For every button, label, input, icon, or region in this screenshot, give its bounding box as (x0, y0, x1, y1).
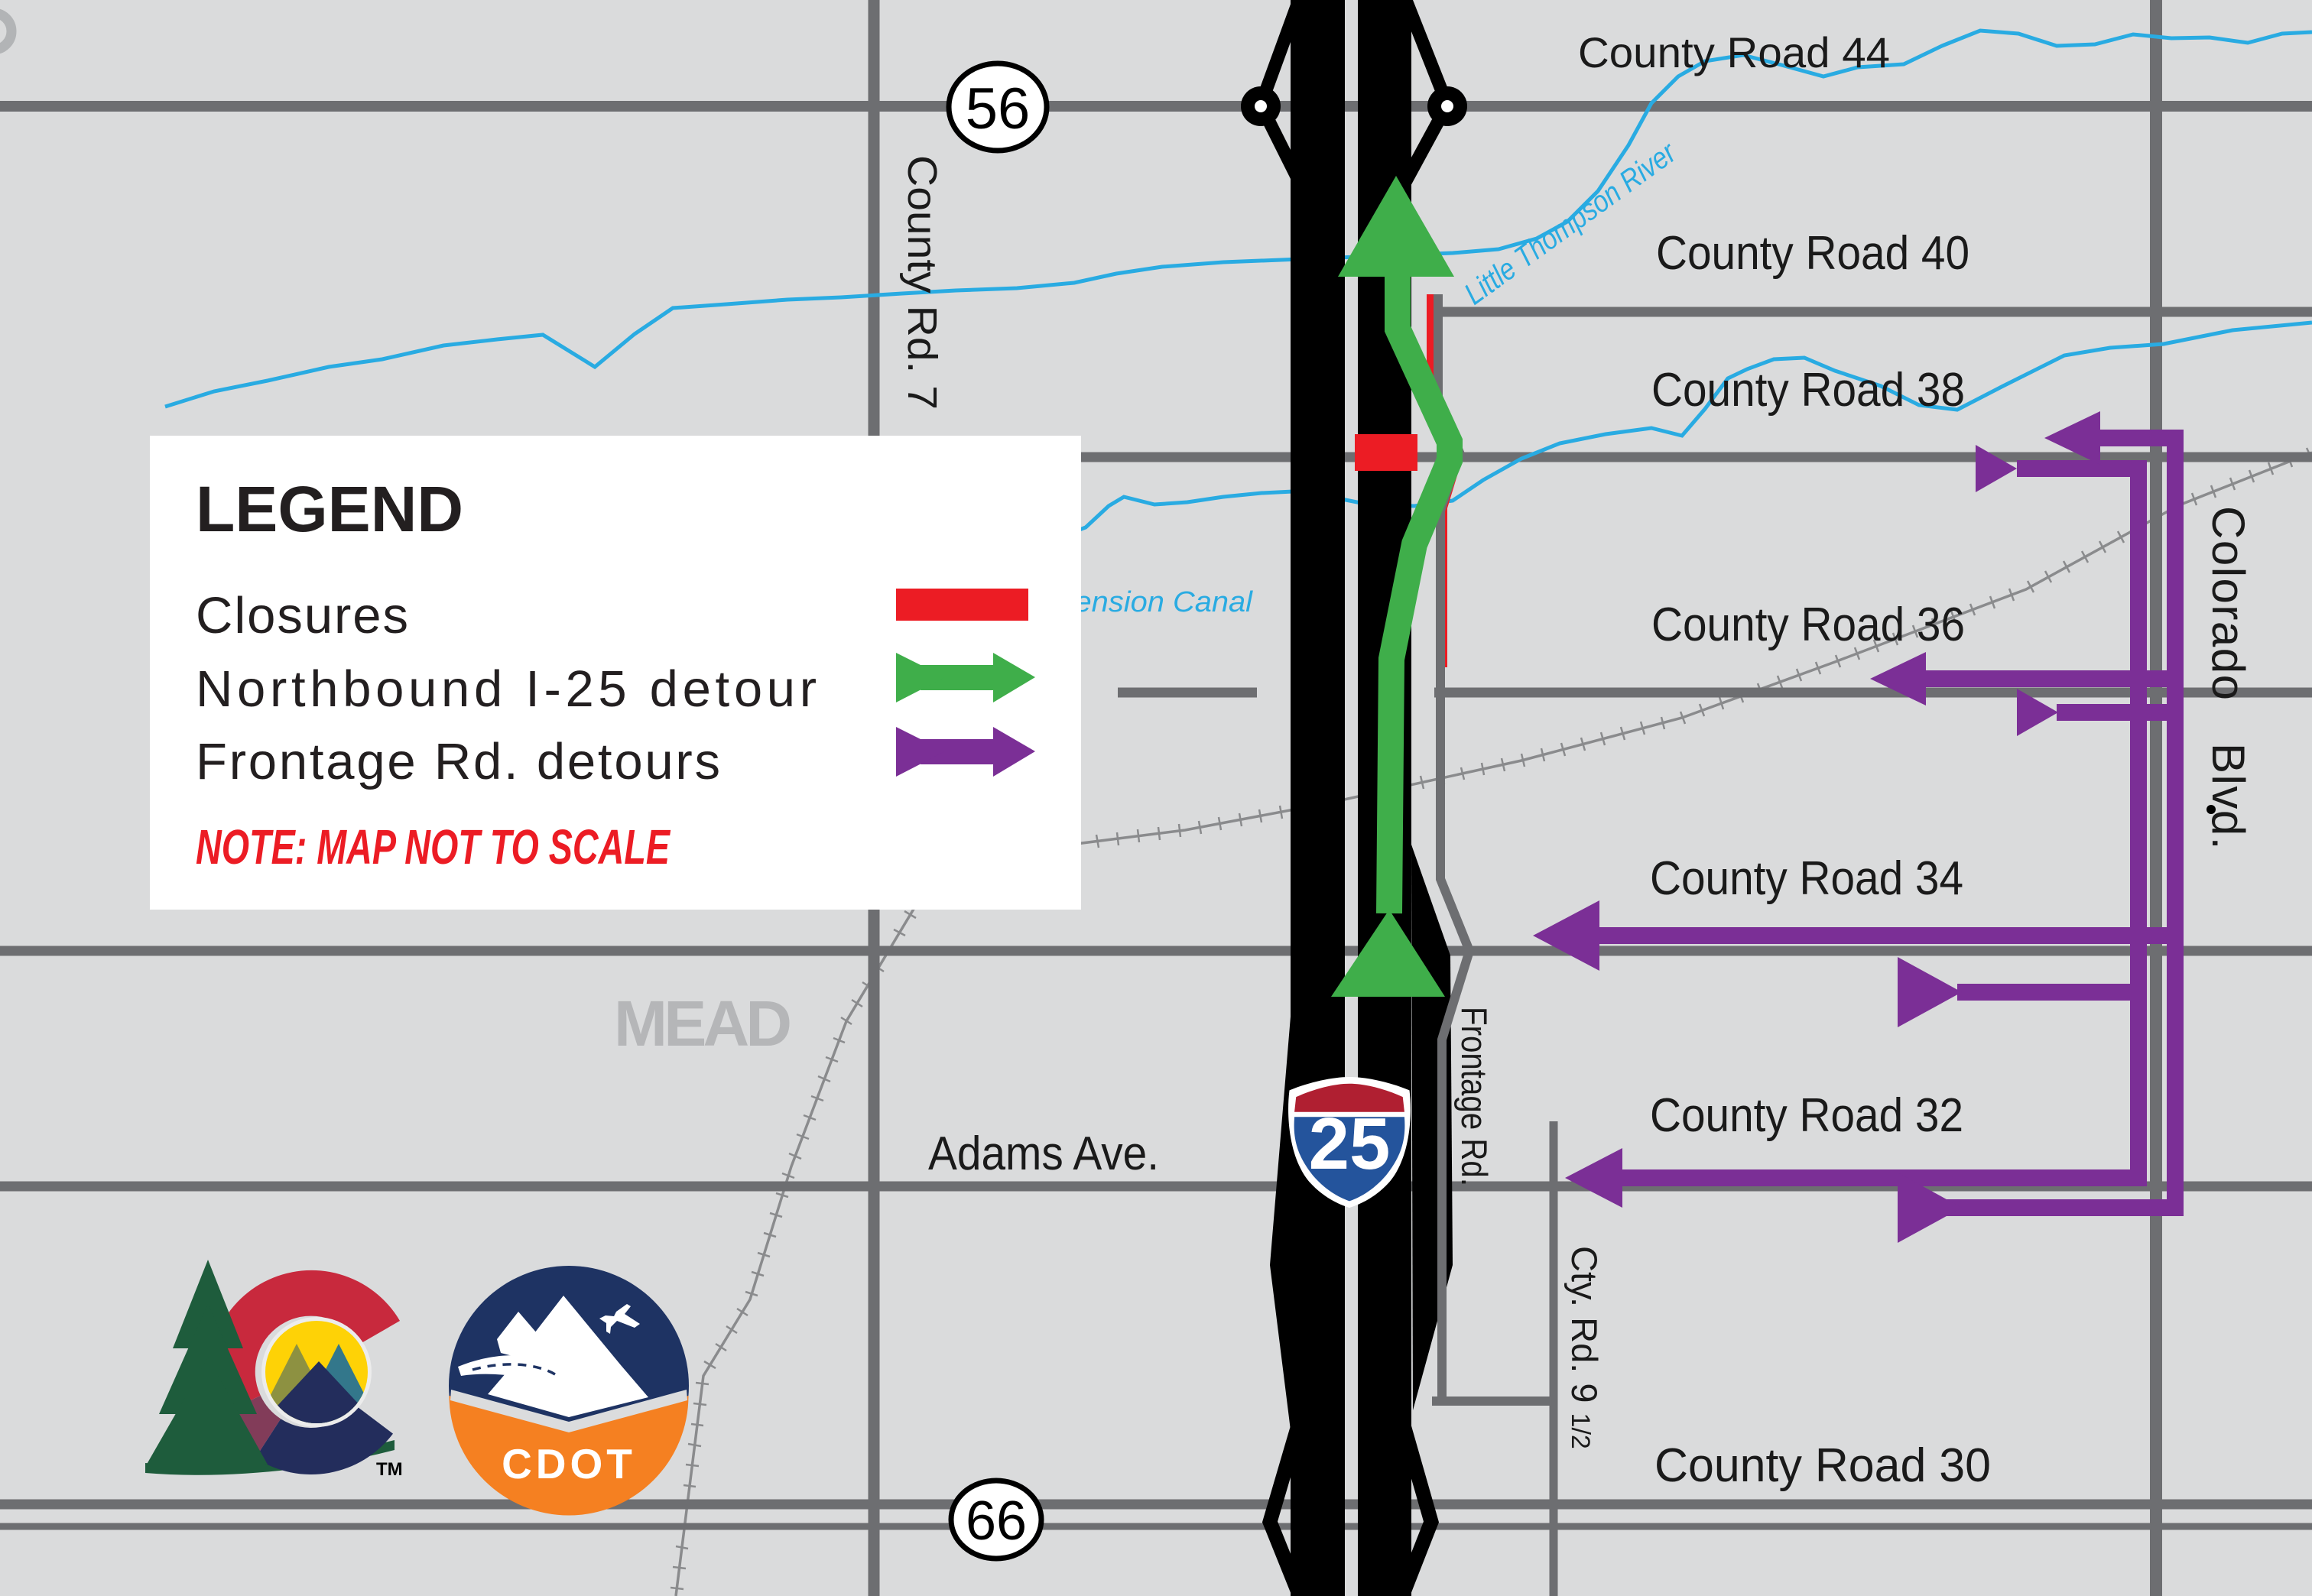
svg-text:66: 66 (966, 1491, 1027, 1552)
svg-text:Frontage Rd.: Frontage Rd. (1454, 1007, 1495, 1186)
svg-text:MEAD: MEAD (614, 988, 792, 1059)
svg-text:County Road 38: County Road 38 (1651, 364, 1965, 417)
svg-text:Colorado Blvd.: Colorado Blvd. (2203, 506, 2254, 851)
svg-text:County Rd. 7: County Rd. 7 (899, 155, 945, 410)
svg-text:25: 25 (1309, 1103, 1391, 1185)
svg-text:Frontage Rd. detours: Frontage Rd. detours (196, 733, 720, 790)
svg-text:NOTE: MAP NOT TO SCALE: NOTE: MAP NOT TO SCALE (196, 819, 671, 874)
svg-text:County Road 40: County Road 40 (1656, 227, 1969, 280)
svg-text:Closures: Closures (196, 587, 408, 644)
svg-text:County Road 44: County Road 44 (1578, 28, 1890, 76)
svg-text:CDOT: CDOT (502, 1440, 636, 1487)
svg-text:56: 56 (966, 76, 1031, 141)
svg-text:Adams Ave.: Adams Ave. (928, 1127, 1159, 1180)
svg-text:LEGEND: LEGEND (196, 473, 463, 545)
svg-text:County Road 30: County Road 30 (1654, 1439, 1991, 1492)
svg-text:County Road 36: County Road 36 (1651, 598, 1965, 651)
svg-text:County Road 34: County Road 34 (1650, 852, 1963, 905)
svg-text:TM: TM (376, 1459, 403, 1480)
svg-text:County Road 32: County Road 32 (1650, 1089, 1963, 1142)
